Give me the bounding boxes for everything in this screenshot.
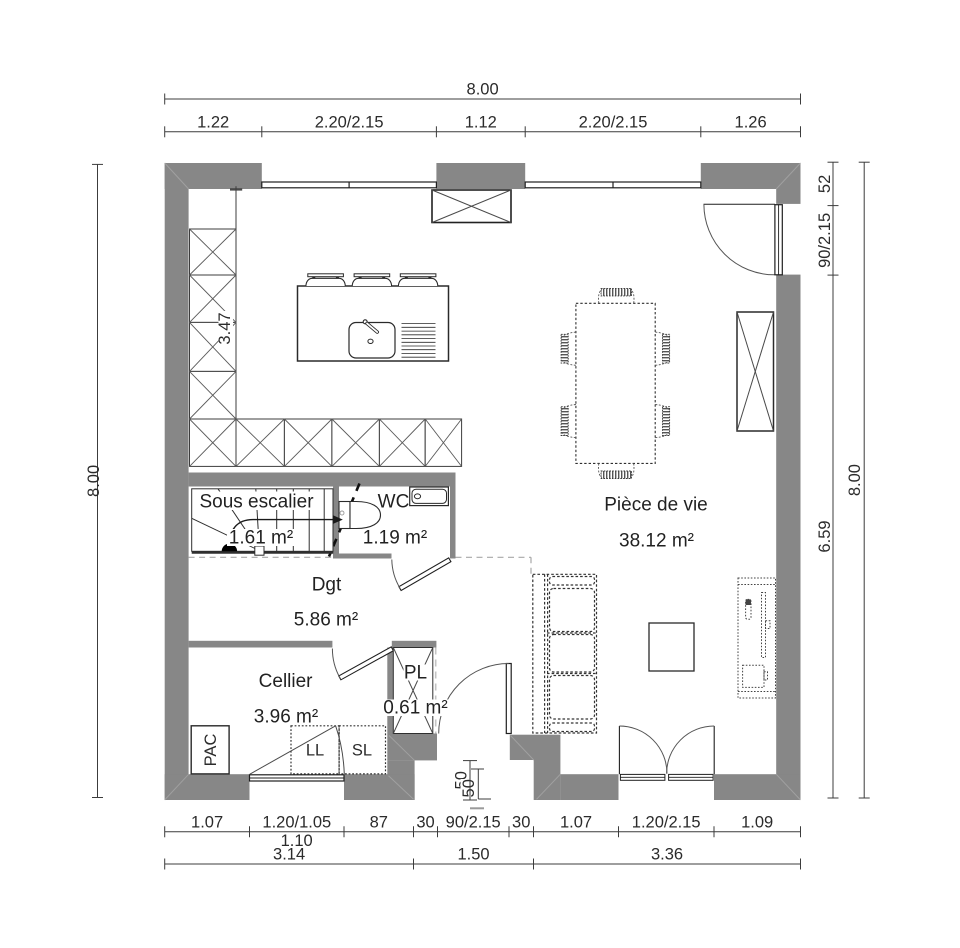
svg-text:SL: SL	[352, 742, 372, 760]
svg-text:1.07: 1.07	[191, 814, 223, 832]
svg-text:2.20/2.15: 2.20/2.15	[579, 114, 648, 132]
svg-text:3.14: 3.14	[273, 846, 305, 864]
svg-text:30: 30	[416, 814, 434, 832]
svg-text:1.19 m²: 1.19 m²	[363, 528, 427, 549]
svg-text:3.96 m²: 3.96 m²	[254, 707, 318, 728]
svg-text:52: 52	[816, 175, 834, 193]
svg-text:30: 30	[512, 814, 530, 832]
svg-text:2.20/2.15: 2.20/2.15	[315, 114, 384, 132]
svg-text:1.20/2.15: 1.20/2.15	[632, 814, 701, 832]
svg-text:1.22: 1.22	[197, 114, 229, 132]
svg-text:87: 87	[370, 814, 388, 832]
svg-text:1.20/1.05: 1.20/1.05	[262, 814, 331, 832]
svg-text:38.12 m²: 38.12 m²	[619, 531, 694, 552]
svg-text:6.59: 6.59	[816, 520, 834, 552]
svg-text:8.00: 8.00	[846, 464, 864, 496]
svg-text:1.09: 1.09	[741, 814, 773, 832]
svg-text:PL: PL	[404, 663, 427, 684]
svg-text:8.00: 8.00	[467, 81, 499, 99]
svg-text:0.61 m²: 0.61 m²	[383, 698, 447, 719]
svg-text:1.12: 1.12	[465, 114, 497, 132]
svg-text:Cellier: Cellier	[259, 671, 314, 692]
svg-text:1.26: 1.26	[735, 114, 767, 132]
svg-text:3.36: 3.36	[651, 846, 683, 864]
svg-text:90/2.15: 90/2.15	[816, 213, 834, 268]
svg-text:Dgt: Dgt	[312, 575, 342, 596]
svg-text:8.00: 8.00	[85, 465, 103, 497]
svg-text:1.50: 1.50	[457, 846, 489, 864]
svg-text:90/2.15: 90/2.15	[446, 814, 501, 832]
svg-text:1.61 m²: 1.61 m²	[229, 528, 293, 549]
svg-text:Sous escalier: Sous escalier	[199, 492, 314, 513]
svg-text:Pièce de vie: Pièce de vie	[604, 495, 708, 516]
svg-text:1.07: 1.07	[560, 814, 592, 832]
svg-text:50: 50	[460, 779, 478, 797]
svg-text:5.86 m²: 5.86 m²	[294, 610, 358, 631]
svg-text:WC: WC	[378, 492, 410, 513]
svg-text:PAC: PAC	[202, 734, 220, 767]
svg-text:3.47: 3.47	[216, 312, 234, 344]
svg-text:LL: LL	[306, 742, 324, 760]
